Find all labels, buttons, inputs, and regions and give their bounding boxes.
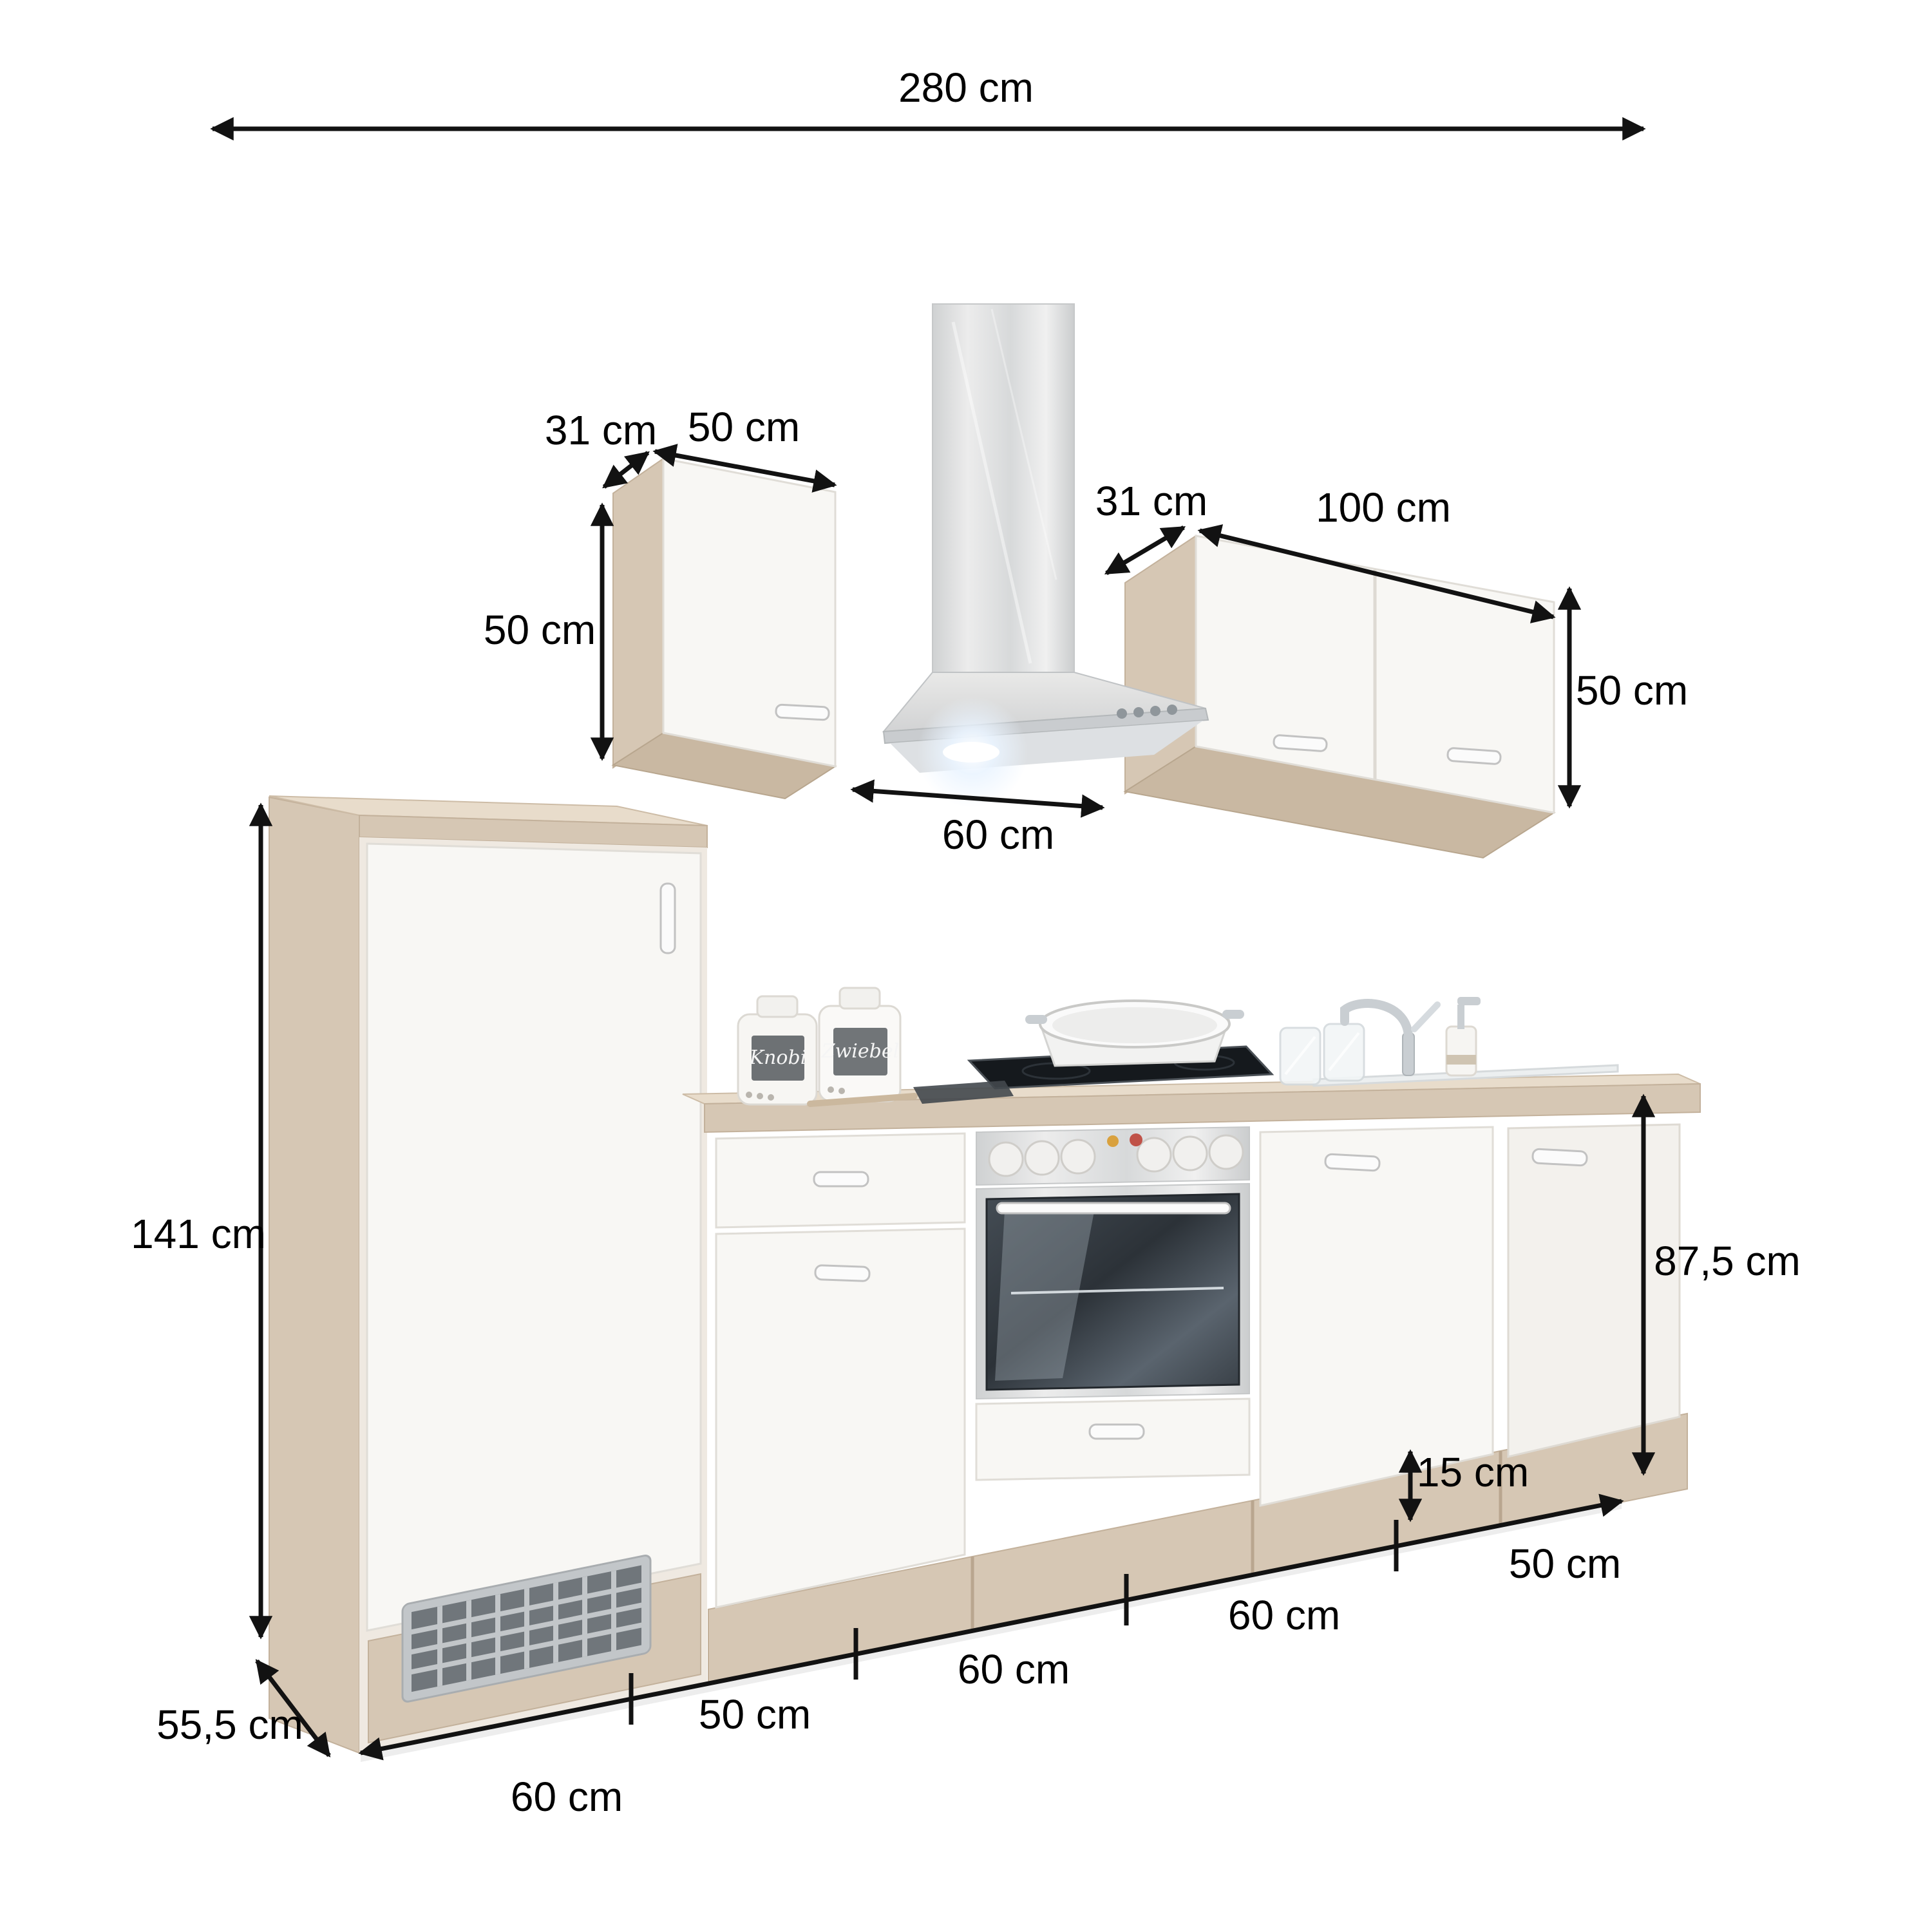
- cooking-pan: [1025, 1001, 1244, 1066]
- faucet-lever: [1414, 1005, 1437, 1029]
- wall-cabinet-right: [1125, 536, 1554, 858]
- kitchen-dimension-diagram: Knobi Zwiebel: [0, 0, 1932, 1932]
- dim-seg-cabinet-label: 60 cm: [1228, 1592, 1340, 1638]
- dim-seg-tall-label: 60 cm: [511, 1774, 623, 1820]
- dim-seg-drawer-label: 50 cm: [699, 1691, 811, 1738]
- canister-right-label: Zwiebel: [821, 1040, 899, 1063]
- dim-left-wall-depth-label: 31 cm: [545, 407, 657, 453]
- oven-door-handle: [997, 1203, 1230, 1213]
- canister-left: Knobi: [738, 996, 817, 1104]
- dim-right-wall-width-label: 100 cm: [1316, 484, 1451, 531]
- soap-dispenser: [1446, 997, 1481, 1075]
- base-unit-60-handle: [1325, 1154, 1379, 1171]
- cooker-hood: [884, 304, 1208, 808]
- wall-cabinet-right-handle-left: [1273, 735, 1327, 752]
- drinking-glasses: [1280, 1024, 1364, 1084]
- hood-light: [943, 742, 999, 762]
- tall-cabinet-door: [367, 844, 701, 1631]
- dim-right-wall-depth-label: 31 cm: [1095, 478, 1207, 524]
- tall-cabinet: [269, 796, 707, 1753]
- sink-area: [1280, 997, 1618, 1086]
- oven: [976, 1127, 1249, 1480]
- dim-hood-width-label: 60 cm: [942, 811, 1054, 858]
- dim-tall-height-label: 141 cm: [131, 1211, 266, 1257]
- dim-total-width-label: 280 cm: [898, 64, 1034, 111]
- sink-base-unit: [1508, 1124, 1680, 1457]
- base-unit-drawer-door-handle: [815, 1265, 870, 1282]
- pan-handle-right: [1222, 1010, 1244, 1019]
- diagram-canvas: Knobi Zwiebel: [0, 0, 1932, 1932]
- wall-cabinet-right-handle-right: [1447, 748, 1501, 764]
- dim-worktop-height-label: 87,5 cm: [1654, 1238, 1801, 1284]
- tall-cabinet-handle: [661, 884, 675, 953]
- base-unit-drawer-door: [716, 1229, 965, 1607]
- dim-seg-oven-label: 60 cm: [958, 1646, 1070, 1692]
- dim-left-wall-height-label: 50 cm: [484, 607, 596, 653]
- wall-cabinet-left-door: [663, 459, 835, 766]
- oven-indicator-amber: [1107, 1135, 1119, 1147]
- dim-depth-label: 55,5 cm: [156, 1701, 303, 1748]
- counter-decor: Knobi Zwiebel: [738, 988, 1014, 1104]
- hob: [969, 1001, 1272, 1088]
- canister-left-label: Knobi: [749, 1046, 807, 1069]
- dim-seg-sink-label: 50 cm: [1509, 1540, 1621, 1587]
- oven-indicator-red: [1130, 1133, 1142, 1146]
- wall-cabinet-left-handle: [776, 705, 829, 720]
- tall-cabinet-side-panel: [269, 797, 359, 1753]
- base-unit-drawer: [716, 1133, 965, 1607]
- dim-left-wall-width-label: 50 cm: [688, 404, 800, 450]
- pan-handle-left: [1025, 1015, 1047, 1024]
- dim-right-wall-height-label: 50 cm: [1576, 667, 1688, 714]
- dim-plinth-height-label: 15 cm: [1417, 1449, 1529, 1495]
- drawer-handle: [814, 1172, 868, 1186]
- sink-base-unit-handle: [1532, 1149, 1587, 1166]
- wall-cabinet-left: [613, 459, 835, 799]
- canister-right: Zwiebel: [819, 988, 900, 1101]
- sink-base-unit-door: [1508, 1124, 1680, 1457]
- wall-cabinet-left-side-panel: [613, 459, 663, 768]
- oven-lower-drawer-handle: [1090, 1425, 1144, 1439]
